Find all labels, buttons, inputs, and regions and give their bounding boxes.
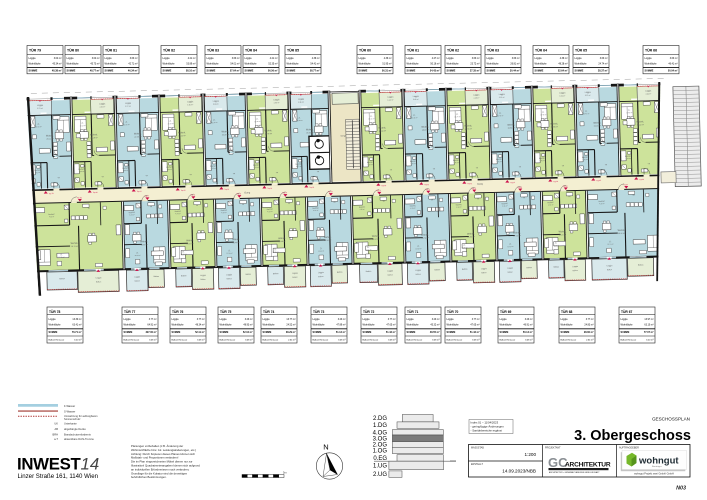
- svg-text:Loggia: Loggia: [447, 58, 455, 60]
- svg-text:AB: AB: [55, 427, 59, 431]
- svg-text:47.65 m²: 47.65 m²: [386, 324, 395, 327]
- svg-text:Bad/WC: Bad/WC: [48, 214, 55, 216]
- svg-text:Balkon: Balkon: [273, 273, 279, 275]
- svg-text:48.34 m²: 48.34 m²: [195, 324, 204, 327]
- svg-text:3.77 m²: 3.77 m²: [472, 318, 480, 321]
- svg-text:Loggia: Loggia: [134, 276, 141, 278]
- svg-text:Gang: Gang: [477, 183, 484, 186]
- svg-text:63.41 m²: 63.41 m²: [72, 324, 81, 327]
- svg-text:Wohnk.: Wohnk.: [232, 239, 240, 241]
- svg-text:29.32 m²: 29.32 m²: [618, 232, 626, 235]
- svg-text:18.13 m²: 18.13 m²: [71, 245, 79, 248]
- svg-text:3.63 m²: 3.63 m²: [232, 57, 240, 60]
- svg-text:3.77 m²: 3.77 m²: [149, 318, 157, 321]
- svg-text:SUMME: SUMME: [105, 69, 114, 72]
- svg-text:54.41 m²: 54.41 m²: [310, 63, 319, 66]
- svg-text:Wohnk.: Wohnk.: [178, 132, 186, 134]
- svg-text:Wohnk.: Wohnk.: [221, 131, 229, 133]
- svg-text:3.63 m²: 3.63 m²: [600, 57, 608, 60]
- svg-text:Bad/WC: Bad/WC: [367, 162, 374, 164]
- svg-text:BRH: BRH: [53, 432, 59, 436]
- svg-text:Balkon/Terrasse: Balkon/Terrasse: [447, 339, 463, 342]
- svg-text:N03: N03: [676, 486, 686, 492]
- svg-text:F-Wasser: F-Wasser: [64, 404, 75, 408]
- svg-text:52.16 m²: 52.16 m²: [243, 330, 253, 334]
- svg-text:Loggia: Loggia: [561, 319, 569, 321]
- svg-text:Wohnk.: Wohnk.: [593, 122, 601, 124]
- svg-text:TÜR 69: TÜR 69: [500, 310, 512, 314]
- svg-text:Top 73: Top 73: [328, 191, 333, 193]
- svg-text:Sonnenschutz: Sonnenschutz: [64, 417, 81, 421]
- svg-text:25.46 m²: 25.46 m²: [265, 132, 273, 135]
- svg-text:50.16 m²: 50.16 m²: [430, 63, 439, 66]
- svg-text:21.40 m²: 21.40 m²: [233, 241, 241, 244]
- svg-text:57.64 m²: 57.64 m²: [230, 68, 240, 72]
- svg-text:TÜR 64: TÜR 64: [535, 49, 547, 53]
- svg-text:3.OG: 3.OG: [373, 436, 388, 442]
- svg-text:58.10 m²: 58.10 m²: [186, 68, 196, 72]
- svg-text:SUMME: SUMME: [363, 331, 372, 334]
- svg-text:1:200: 1:200: [525, 452, 537, 457]
- svg-text:Wohnfläche: Wohnfläche: [535, 64, 548, 66]
- svg-text:SUMME: SUMME: [287, 69, 296, 72]
- svg-text:Balkon: Balkon: [607, 269, 612, 271]
- svg-text:AUFTRAGGEBER: AUFTRAGGEBER: [619, 447, 639, 450]
- svg-text:Bad/WC: Bad/WC: [129, 212, 136, 214]
- svg-text:Loggia: Loggia: [245, 58, 253, 60]
- svg-text:13.30 m²: 13.30 m²: [72, 318, 81, 321]
- svg-text:3.33 m²: 3.33 m²: [213, 103, 219, 106]
- svg-text:3.08 m²: 3.08 m²: [432, 339, 440, 342]
- svg-text:Wohnk.: Wohnk.: [324, 237, 332, 239]
- svg-text:Wohnk.: Wohnk.: [140, 241, 148, 243]
- svg-text:Bad/WC: Bad/WC: [456, 204, 463, 206]
- svg-text:Wohnk.: Wohnk.: [513, 232, 521, 234]
- svg-text:6.54 m²: 6.54 m²: [559, 94, 565, 97]
- svg-text:SUMME: SUMME: [313, 331, 322, 334]
- svg-text:Wohnfläche: Wohnfläche: [407, 325, 420, 327]
- svg-text:Wohnnutzfläche bzw. zul. Leist: Wohnnutzfläche bzw. zul. Leistungsänderu…: [131, 448, 196, 452]
- svg-text:Wohnfläche: Wohnfläche: [645, 64, 658, 66]
- svg-text:Wohnfläche: Wohnfläche: [313, 325, 326, 327]
- svg-text:SUMME: SUMME: [220, 331, 229, 334]
- svg-text:6.30 m²: 6.30 m²: [187, 103, 193, 106]
- svg-text:3.45 m²: 3.45 m²: [413, 98, 419, 101]
- svg-text:4.36 m²: 4.36 m²: [560, 57, 568, 60]
- svg-text:77.07 m²: 77.07 m²: [644, 330, 654, 334]
- svg-text:TÜR 78: TÜR 78: [49, 310, 61, 314]
- svg-text:Wohnk.: Wohnk.: [90, 134, 98, 136]
- svg-text:Loggia: Loggia: [200, 275, 207, 277]
- svg-text:TÜR 60: TÜR 60: [359, 49, 371, 53]
- svg-text:Loggia: Loggia: [226, 274, 233, 276]
- svg-text:Loggia: Loggia: [29, 58, 37, 60]
- svg-text:Loggia: Loggia: [645, 90, 652, 92]
- svg-text:ERSTELLT: ERSTELLT: [471, 463, 483, 466]
- svg-text:45.34 m²: 45.34 m²: [52, 63, 61, 66]
- svg-text:Loggia: Loggia: [387, 270, 394, 272]
- svg-text:TÜR 76: TÜR 76: [172, 310, 184, 314]
- svg-text:47.89 m²: 47.89 m²: [336, 324, 345, 327]
- svg-text:SUMME: SUMME: [407, 69, 416, 72]
- svg-text:58.77 m²: 58.77 m²: [310, 68, 320, 72]
- svg-text:Gang: Gang: [244, 191, 251, 194]
- svg-text:Bad/WC: Bad/WC: [359, 206, 366, 208]
- svg-text:Bad/WC: Bad/WC: [410, 205, 417, 207]
- svg-text:Bad/WC: Bad/WC: [175, 211, 182, 213]
- svg-text:3.08 m²: 3.08 m²: [338, 339, 346, 342]
- svg-text:Loggia: Loggia: [607, 265, 614, 267]
- svg-text:28.37 m²: 28.37 m²: [598, 68, 608, 72]
- svg-text:28.60 m²: 28.60 m²: [584, 330, 594, 334]
- svg-text:3.77 m²: 3.77 m²: [388, 318, 396, 321]
- svg-text:54.01 m²: 54.01 m²: [230, 63, 239, 66]
- svg-text:Loggia: Loggia: [220, 319, 228, 321]
- svg-text:Bad/WC: Bad/WC: [34, 170, 41, 172]
- svg-text:Wohnk.: Wohnk.: [278, 238, 286, 240]
- svg-text:Wohnk.: Wohnk.: [71, 243, 79, 245]
- svg-text:27.35 m²: 27.35 m²: [470, 68, 480, 72]
- svg-text:47.65 m²: 47.65 m²: [470, 324, 479, 327]
- svg-text:1.OG: 1.OG: [373, 449, 388, 455]
- svg-text:Maßstab- und Proportionen verä: Maßstab- und Proportionen verändern!: [131, 456, 179, 460]
- svg-text:SUMME: SUMME: [172, 331, 181, 334]
- svg-text:Bad/WC: Bad/WC: [253, 164, 260, 166]
- svg-text:Loggia: Loggia: [124, 319, 132, 321]
- svg-text:Balkon: Balkon: [227, 278, 232, 280]
- svg-text:Top 75: Top 75: [236, 193, 241, 195]
- svg-text:Balkon/Terrasse: Balkon/Terrasse: [363, 339, 379, 342]
- svg-text:Loggia: Loggia: [535, 58, 543, 60]
- svg-text:Balkon/Terrasse: Balkon/Terrasse: [500, 339, 516, 342]
- svg-text:Unterkante: Unterkante: [64, 422, 77, 426]
- svg-text:TÜR 70: TÜR 70: [447, 310, 459, 314]
- svg-text:wohngut Projekt zwei Gmbh/ Gmb: wohngut Projekt zwei Gmbh/ GmbH: [634, 473, 674, 476]
- svg-text:3.04 m²: 3.04 m²: [92, 57, 100, 60]
- svg-text:Wohnfläche: Wohnfläche: [105, 64, 118, 66]
- svg-text:SUMME: SUMME: [447, 331, 456, 334]
- svg-text:Balkon: Balkon: [462, 269, 468, 271]
- svg-text:46.34 m²: 46.34 m²: [128, 68, 138, 72]
- svg-text:54.43 m²: 54.43 m²: [430, 68, 440, 72]
- svg-text:Wohnfläche: Wohnfläche: [447, 325, 460, 327]
- svg-text:Loggia: Loggia: [575, 58, 583, 60]
- svg-text:Loggia: Loggia: [318, 272, 325, 274]
- svg-text:Linzer Straße 161, 1140 Wien: Linzer Straße 161, 1140 Wien: [18, 473, 99, 480]
- svg-text:28.23 m²: 28.23 m²: [559, 233, 567, 236]
- svg-text:63.10 m²: 63.10 m²: [644, 324, 653, 327]
- svg-text:Loggia: Loggia: [481, 268, 488, 270]
- svg-text:3.23 m²: 3.23 m²: [432, 318, 440, 321]
- svg-text:SUMME: SUMME: [124, 331, 133, 334]
- svg-text:3.63 m²: 3.63 m²: [670, 57, 678, 60]
- svg-text:Bad/WC: Bad/WC: [78, 169, 85, 171]
- svg-text:Loggia: Loggia: [287, 58, 295, 60]
- svg-text:22.49 m²: 22.49 m²: [279, 240, 287, 243]
- svg-text:SUMME: SUMME: [447, 69, 456, 72]
- svg-text:Loggia: Loggia: [37, 105, 44, 107]
- svg-text:Wohnk.: Wohnk.: [467, 233, 475, 235]
- svg-text:Illustration! Quadratmeteranga: Illustration! Quadratmeterangaben können…: [131, 464, 200, 468]
- svg-text:32.15 m²: 32.15 m²: [594, 124, 602, 127]
- svg-text:Wohnfläche: Wohnfläche: [207, 64, 220, 66]
- svg-text:Bad/WC: Bad/WC: [410, 161, 417, 163]
- svg-text:TÜR 79: TÜR 79: [29, 49, 41, 53]
- svg-text:SUMME: SUMME: [561, 331, 570, 334]
- svg-text:Top 70: Top 70: [471, 188, 476, 190]
- svg-text:Top 84: Top 84: [267, 188, 272, 190]
- svg-text:TÜR 63: TÜR 63: [487, 49, 499, 53]
- svg-text:Wohnk.: Wohnk.: [618, 230, 626, 232]
- svg-text:3.04 m²: 3.04 m²: [54, 57, 62, 60]
- svg-text:TÜR 74: TÜR 74: [263, 310, 275, 314]
- svg-text:TÜR 73: TÜR 73: [313, 310, 325, 314]
- svg-text:Balkon: Balkon: [435, 269, 441, 271]
- svg-text:24.39 m²: 24.39 m²: [222, 133, 230, 136]
- svg-text:Loggia: Loggia: [163, 58, 171, 60]
- svg-text:3.77 m²: 3.77 m²: [586, 318, 594, 321]
- svg-text:Loggia: Loggia: [407, 58, 415, 60]
- svg-text:Loggia: Loggia: [298, 99, 305, 101]
- svg-text:Balkon: Balkon: [573, 270, 578, 272]
- svg-text:51.12 m²: 51.12 m²: [336, 330, 346, 334]
- svg-text:Bad/WC: Bad/WC: [599, 201, 606, 203]
- svg-text:42.71 m²: 42.71 m²: [128, 63, 137, 66]
- svg-text:Loggia: Loggia: [96, 277, 103, 279]
- svg-text:TÜR 75: TÜR 75: [220, 310, 232, 314]
- svg-text:Balkon/Terrasse: Balkon/Terrasse: [124, 339, 140, 342]
- svg-text:Balkon: Balkon: [481, 272, 486, 274]
- svg-text:3.63 m²: 3.63 m²: [472, 57, 480, 60]
- svg-text:Bad/WC: Bad/WC: [453, 160, 460, 162]
- svg-text:UK: UK: [54, 422, 58, 426]
- svg-text:50.04 m²: 50.04 m²: [668, 68, 678, 72]
- svg-text:Top 81: Top 81: [137, 191, 142, 193]
- svg-text:Bad/WC: Bad/WC: [295, 163, 302, 165]
- svg-text:SUMME: SUMME: [263, 331, 272, 334]
- svg-text:Brandschutzerfordernis: Brandschutzerfordernis: [64, 432, 92, 436]
- svg-text:ARCHITEKTUR: ARCHITEKTUR: [565, 462, 611, 469]
- svg-text:Loggia: Loggia: [473, 94, 480, 96]
- svg-text:TÜR 85: TÜR 85: [287, 49, 299, 53]
- svg-text:Wohnk.: Wohnk.: [636, 121, 644, 123]
- svg-text:Wohnfläche: Wohnfläche: [263, 325, 276, 327]
- svg-text:51.42 m²: 51.42 m²: [470, 330, 480, 334]
- svg-text:Wohnfläche: Wohnfläche: [500, 325, 513, 327]
- svg-text:26.53 m²: 26.53 m²: [306, 131, 314, 134]
- svg-text:5.27 m²: 5.27 m²: [125, 105, 131, 108]
- svg-text:24.83 m²: 24.83 m²: [584, 324, 593, 327]
- svg-text:3. Obergeschoss: 3. Obergeschoss: [574, 428, 691, 444]
- svg-text:2.UG: 2.UG: [373, 472, 387, 478]
- svg-text:SUMME: SUMME: [163, 69, 172, 72]
- svg-text:Loggia: Loggia: [507, 267, 514, 269]
- svg-text:Loggia: Loggia: [499, 94, 506, 96]
- svg-text:Balkon: Balkon: [554, 266, 560, 268]
- svg-text:Loggia: Loggia: [500, 319, 508, 321]
- svg-text:Top 79: Top 79: [49, 193, 54, 195]
- svg-text:31.88 m²: 31.88 m²: [551, 125, 559, 128]
- svg-text:20.11 m²: 20.11 m²: [46, 137, 53, 140]
- svg-text:14: 14: [81, 455, 100, 474]
- svg-text:Top 71: Top 71: [425, 189, 430, 191]
- svg-text:4.60 m²: 4.60 m²: [645, 92, 651, 95]
- svg-text:30.81 m²: 30.81 m²: [508, 126, 516, 129]
- svg-text:23.58 m²: 23.58 m²: [324, 239, 332, 242]
- svg-text:Wohnk.: Wohnk.: [186, 240, 194, 242]
- svg-text:48.77 m²: 48.77 m²: [90, 68, 100, 72]
- svg-text:Wohnfläche: Wohnfläche: [363, 325, 376, 327]
- svg-text:3.63 m²: 3.63 m²: [130, 57, 138, 60]
- svg-text:Top 67: Top 67: [623, 184, 628, 186]
- svg-text:4.36 m²: 4.36 m²: [274, 101, 280, 104]
- svg-text:SUMME: SUMME: [29, 69, 38, 72]
- svg-text:23.32 m²: 23.32 m²: [178, 134, 186, 137]
- svg-text:Bad/WC: Bad/WC: [496, 159, 503, 161]
- svg-text:52.35 m²: 52.35 m²: [268, 63, 277, 66]
- svg-text:TÜR 66: TÜR 66: [645, 49, 657, 53]
- svg-text:Loggia: Loggia: [363, 319, 371, 321]
- svg-text:Bad/WC: Bad/WC: [313, 208, 320, 210]
- svg-text:SUMME: SUMME: [535, 69, 544, 72]
- svg-text:Balkon/Terrasse: Balkon/Terrasse: [172, 339, 188, 342]
- svg-text:Top 62: Top 62: [467, 183, 472, 185]
- svg-text:3.63 m²: 3.63 m²: [512, 57, 520, 60]
- svg-text:Top 74: Top 74: [282, 192, 287, 194]
- svg-text:3.08 m²: 3.08 m²: [245, 339, 253, 342]
- svg-text:SUMME: SUMME: [359, 69, 368, 72]
- svg-text:Loggia: Loggia: [213, 101, 220, 103]
- svg-text:45.32 m²: 45.32 m²: [430, 324, 439, 327]
- svg-text:TÜR 80: TÜR 80: [67, 49, 79, 53]
- svg-text:52.11 m²: 52.11 m²: [195, 330, 205, 334]
- svg-text:Planungen vorbehalten (z.B. Än: Planungen vorbehalten (z.B. Änderung der: [131, 444, 183, 448]
- svg-text:Wohnfläche: Wohnfläche: [407, 64, 420, 66]
- svg-text:Top 83: Top 83: [224, 189, 229, 191]
- svg-text:24.74 m²: 24.74 m²: [598, 63, 607, 66]
- svg-text:3.21 m²: 3.21 m²: [37, 107, 43, 110]
- svg-text:- Sanitärbereiche ergänzt: - Sanitärbereiche ergänzt: [471, 429, 503, 433]
- svg-text:48.28 m²: 48.28 m²: [558, 63, 567, 66]
- svg-text:50.14 m²: 50.14 m²: [523, 330, 533, 334]
- svg-text:INWEST: INWEST: [17, 455, 82, 474]
- svg-text:TÜR 62: TÜR 62: [447, 49, 459, 53]
- svg-text:26.81 m²: 26.81 m²: [510, 63, 519, 66]
- svg-text:5m: 5m: [283, 471, 287, 475]
- svg-text:26.85 m²: 26.85 m²: [468, 235, 476, 238]
- svg-text:29.74 m²: 29.74 m²: [465, 127, 473, 130]
- svg-text:Wohnk.: Wohnk.: [559, 231, 567, 233]
- svg-text:Balkon/Terrasse: Balkon/Terrasse: [621, 339, 637, 342]
- svg-text:27.14 m²: 27.14 m²: [514, 234, 522, 237]
- svg-text:Top 85: Top 85: [309, 187, 314, 189]
- svg-text:4.36 m²: 4.36 m²: [384, 57, 392, 60]
- svg-text:Wohnk.: Wohnk.: [378, 127, 386, 129]
- svg-text:3.08 m²: 3.08 m²: [388, 339, 396, 342]
- svg-text:Grundlage für die Kubatur sind: Grundlage für die Kubatur sind die derze…: [131, 471, 188, 475]
- svg-text:Wohnfläche: Wohnfläche: [359, 64, 372, 66]
- svg-text:2.64 m²: 2.64 m²: [586, 339, 594, 342]
- svg-text:SUMME: SUMME: [575, 69, 584, 72]
- svg-text:Loggia: Loggia: [415, 270, 422, 272]
- svg-text:3.08 m²: 3.08 m²: [525, 339, 533, 342]
- svg-text:ARCHITEKTUR + GENERALPLANUNGS: ARCHITEKTUR + GENERALPLANUNGS GESELLSCHA…: [549, 471, 600, 474]
- svg-text:25.76 m²: 25.76 m²: [422, 236, 430, 239]
- svg-text:21.18 m²: 21.18 m²: [90, 136, 98, 139]
- svg-text:33.22 m²: 33.22 m²: [637, 123, 645, 126]
- svg-text:Balkon: Balkon: [416, 274, 421, 276]
- svg-text:Wohnfläche: Wohnfläche: [67, 64, 80, 66]
- svg-text:Loggia: Loggia: [487, 58, 495, 60]
- svg-text:SUMME: SUMME: [49, 331, 58, 334]
- svg-text:Balkon: Balkon: [154, 276, 160, 278]
- svg-text:53.89 m²: 53.89 m²: [186, 63, 195, 66]
- svg-text:Balkon: Balkon: [292, 277, 297, 279]
- svg-text:Die im Plan eingezeichneten Mö: Die im Plan eingezeichneten Möbel dienen…: [131, 460, 193, 464]
- svg-text:Balkon: Balkon: [526, 267, 532, 269]
- svg-text:24.67 m²: 24.67 m²: [372, 238, 380, 241]
- svg-text:an individuellen Erfordernisse: an individuellen Erfordernissen noch ver…: [131, 467, 189, 471]
- svg-text:Bad/WC: Bad/WC: [539, 158, 546, 160]
- svg-text:Bad/WC: Bad/WC: [221, 210, 228, 212]
- svg-text:Top 66: Top 66: [639, 179, 644, 181]
- svg-text:28.67 m²: 28.67 m²: [422, 128, 430, 131]
- svg-text:Wohnfläche: Wohnfläche: [163, 64, 176, 66]
- svg-text:Wohnfläche: Wohnfläche: [220, 325, 233, 327]
- svg-text:4.21 m²: 4.21 m²: [188, 57, 196, 60]
- svg-text:Loggia: Loggia: [407, 319, 415, 321]
- svg-text:48.93 m²: 48.93 m²: [243, 324, 252, 327]
- svg-text:SUMME: SUMME: [207, 69, 216, 72]
- svg-text:Wohnk.: Wohnk.: [372, 236, 380, 238]
- svg-text:Top 63: Top 63: [510, 182, 515, 184]
- svg-text:Balkon: Balkon: [200, 279, 205, 281]
- svg-text:Bad/WC: Bad/WC: [166, 167, 173, 169]
- svg-text:Loggia: Loggia: [207, 58, 215, 60]
- svg-text:Wohnk.: Wohnk.: [264, 130, 272, 132]
- svg-text:3.77 m²: 3.77 m²: [197, 318, 205, 321]
- svg-text:Loggia: Loggia: [387, 96, 394, 98]
- svg-text:N: N: [323, 443, 328, 452]
- svg-text:3.57 m²: 3.57 m²: [585, 94, 591, 97]
- svg-text:46.91 m²: 46.91 m²: [523, 324, 532, 327]
- svg-text:Loggia: Loggia: [49, 319, 57, 321]
- svg-text:Wohnk.: Wohnk.: [46, 135, 54, 137]
- svg-text:6.42 m²: 6.42 m²: [388, 98, 394, 101]
- svg-text:14.09.2023/NBB: 14.09.2023/NBB: [502, 469, 536, 474]
- svg-text:SUMME: SUMME: [645, 69, 654, 72]
- svg-text:4.24 m²: 4.24 m²: [99, 105, 105, 108]
- svg-text:S-Wasser: S-Wasser: [64, 409, 75, 413]
- svg-text:TÜR 67: TÜR 67: [621, 310, 633, 314]
- svg-text:Loggia: Loggia: [172, 319, 180, 321]
- svg-text:Loggia: Loggia: [585, 92, 592, 94]
- svg-text:76.71 m²: 76.71 m²: [72, 330, 82, 334]
- svg-text:Bauträger: Bauträger: [652, 465, 662, 468]
- svg-text:Wohnfläche: Wohnfläche: [487, 64, 500, 66]
- svg-text:Balkon: Balkon: [246, 274, 252, 276]
- svg-text:56.31 m²: 56.31 m²: [382, 68, 392, 72]
- svg-text:Wohnfläche: Wohnfläche: [621, 325, 634, 327]
- svg-text:3.23 m²: 3.23 m²: [245, 318, 253, 321]
- svg-text:Wohnfläche: Wohnfläche: [124, 325, 137, 327]
- svg-text:56.56 m²: 56.56 m²: [268, 68, 278, 72]
- svg-text:Wohnk.: Wohnk.: [550, 123, 558, 125]
- svg-text:Top 64: Top 64: [553, 181, 558, 183]
- svg-text:Balkon: Balkon: [366, 271, 372, 273]
- svg-text:TÜR 83: TÜR 83: [207, 49, 219, 53]
- svg-text:22.25 m²: 22.25 m²: [134, 135, 142, 138]
